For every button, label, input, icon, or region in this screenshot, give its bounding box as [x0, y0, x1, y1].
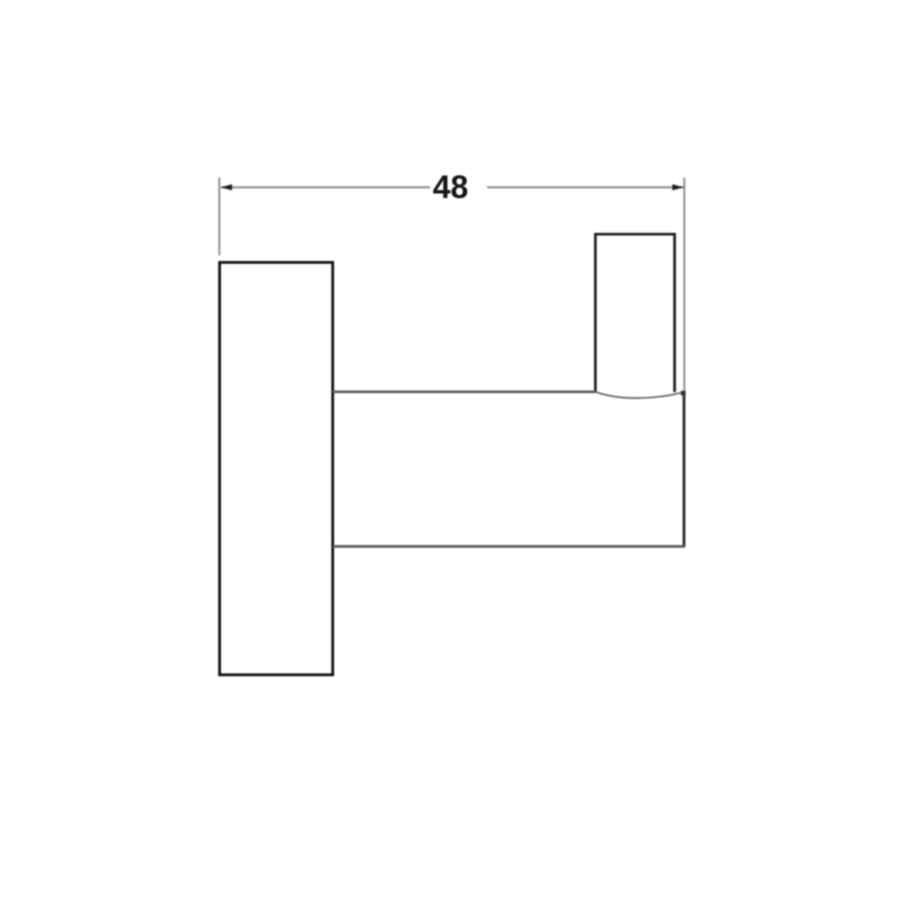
svg-text:48: 48 [433, 169, 469, 205]
